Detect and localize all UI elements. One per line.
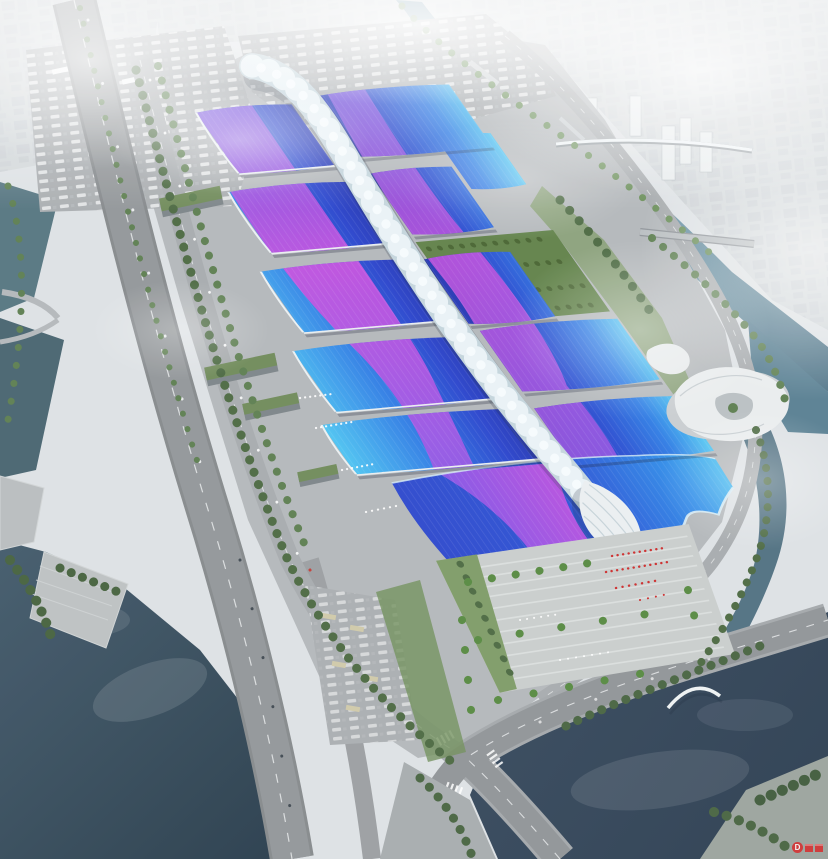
fog-layer xyxy=(0,0,828,859)
watermark-d-icon: D xyxy=(792,842,803,853)
aerial-render-exhibition-center: D xyxy=(0,0,828,859)
watermark-glyph xyxy=(805,844,813,852)
watermark-logo: D xyxy=(792,842,823,853)
scene-canvas xyxy=(0,0,828,859)
watermark-glyph xyxy=(815,844,823,852)
